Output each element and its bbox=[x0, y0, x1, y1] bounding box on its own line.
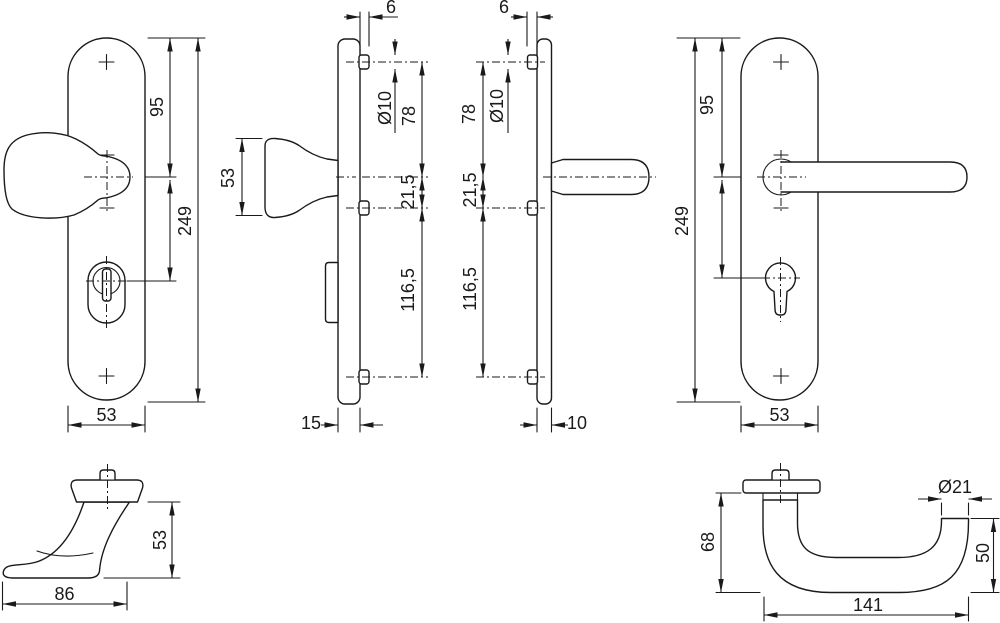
view-interior-front: 95 249 53 bbox=[672, 38, 967, 432]
extension-lines-6 bbox=[527, 12, 537, 46]
view-exterior-side: 6 Ø10 78 21,5 116,5 53 15 bbox=[218, 0, 428, 433]
knob-profile-outline bbox=[3, 502, 129, 578]
extension-lines-15 bbox=[338, 408, 360, 432]
lever-rose-collar bbox=[743, 480, 820, 493]
extension-lines-68 bbox=[716, 493, 760, 593]
dim-label-53: 53 bbox=[769, 405, 789, 425]
backplate-outline bbox=[741, 38, 818, 400]
backplate-outline bbox=[68, 38, 145, 400]
lever-tube-outline bbox=[763, 500, 969, 593]
dim-label-141: 141 bbox=[853, 595, 883, 615]
lever-grip-outline bbox=[781, 162, 967, 192]
technical-drawing: 95 249 53 6 Ø10 78 21,5 116,5 53 bbox=[0, 0, 1000, 623]
extension-lines-6 bbox=[360, 12, 369, 46]
extension-lines-10 bbox=[537, 408, 552, 432]
drawing-canvas: 95 249 53 6 Ø10 78 21,5 116,5 53 bbox=[0, 0, 1000, 623]
dim-label-249: 249 bbox=[672, 206, 692, 236]
dim-label-116-5: 116,5 bbox=[460, 267, 480, 311]
extension-lines-knob53 bbox=[236, 139, 262, 216]
dim-label-dia10: Ø10 bbox=[375, 91, 395, 125]
dim-label-6: 6 bbox=[499, 0, 509, 17]
dim-label-21-5: 21,5 bbox=[460, 172, 480, 207]
dim-label-95: 95 bbox=[147, 97, 167, 117]
dim-label-95: 95 bbox=[697, 95, 717, 115]
dim-label-50: 50 bbox=[973, 543, 993, 563]
dim-label-249: 249 bbox=[175, 206, 195, 236]
dim-label-116-5: 116,5 bbox=[398, 268, 418, 312]
view-knob-profile: 53 86 bbox=[3, 464, 181, 610]
backplate-side-outline bbox=[537, 39, 552, 404]
dim-label-knob-53: 53 bbox=[218, 168, 238, 188]
dim-label-dia21: Ø21 bbox=[938, 477, 972, 497]
dim-label-86: 86 bbox=[54, 584, 74, 604]
view-interior-side: 6 Ø10 78 21,5 116,5 10 bbox=[459, 0, 656, 433]
dim-label-15: 15 bbox=[301, 413, 321, 433]
extension-lines-dia21 bbox=[942, 503, 969, 515]
dim-label-21-5: 21,5 bbox=[398, 174, 418, 209]
knob-side-outline bbox=[265, 138, 338, 217]
dim-label-10: 10 bbox=[567, 413, 587, 433]
view-lever-profile: 68 Ø21 50 141 bbox=[698, 463, 999, 621]
dim-label-6: 6 bbox=[386, 0, 396, 17]
cylinder-guard-side bbox=[326, 263, 339, 323]
dim-label-dia10: Ø10 bbox=[487, 89, 507, 123]
view-exterior-front: 95 249 53 bbox=[4, 38, 205, 432]
dim-label-78: 78 bbox=[459, 104, 479, 124]
backplate-side-outline bbox=[338, 39, 360, 404]
dim-label-68: 68 bbox=[698, 532, 718, 552]
dim-label-53: 53 bbox=[96, 405, 116, 425]
dim-label-78: 78 bbox=[399, 106, 419, 126]
dim-label-53: 53 bbox=[150, 530, 170, 550]
